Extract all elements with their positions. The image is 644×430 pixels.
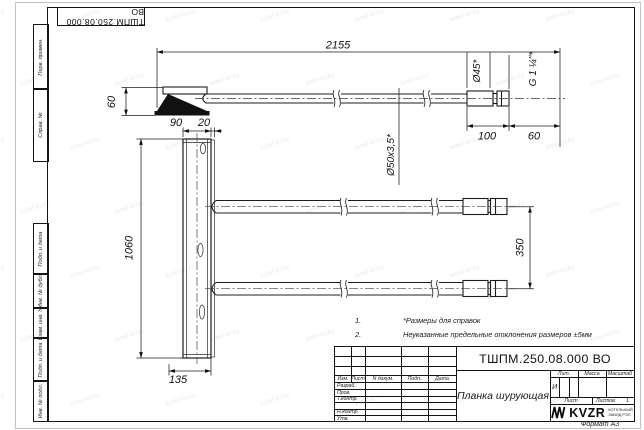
- watermark-text: kotel-kv.kz: [0, 392, 6, 408]
- title-block-doc-number: ТШПМ.250.08.000 ВО: [456, 348, 634, 369]
- col-n-dokum: N докум.: [365, 376, 401, 382]
- watermark-text: kotel-kv.kz: [0, 8, 6, 24]
- listov-label: Листов: [596, 398, 615, 404]
- format-note: Формат А3: [565, 421, 635, 428]
- list-label: Лист: [550, 398, 592, 404]
- col-izm: Изм.: [335, 376, 351, 382]
- part-name: Планка шурующая: [456, 371, 550, 421]
- margin-cell-inv-podl: Инв. № подл.: [33, 380, 49, 422]
- note-1-number: 1.: [355, 316, 361, 325]
- lit-value: И: [550, 380, 559, 394]
- top-rotated-stamp: ТШПМ.250.08.000 ВО: [57, 7, 145, 26]
- stamp-doc-number: ТШПМ.250.08.000 ВО: [58, 7, 144, 27]
- margin-cell-podp-data-upper: Подп. и дата: [33, 223, 49, 275]
- row-prov: Пров.: [337, 390, 351, 396]
- row-utv: Утв.: [337, 416, 349, 422]
- note-2-text: Неуказанные предельные отклонения размер…: [403, 330, 592, 339]
- margin-cell-sprav-no: Справ. №: [33, 88, 49, 162]
- row-n-kontr: Н.контр.: [337, 409, 359, 415]
- manufacturer-logo: KVZR КОТЕЛЬНЫЙ ЗАВОД РЭП: [551, 405, 633, 421]
- kvzr-coil-icon: [551, 406, 566, 419]
- row-razrab: Разраб.: [337, 383, 356, 389]
- col-podp: Подп.: [401, 376, 428, 382]
- row-t-kontr: Т.контр.: [337, 396, 358, 402]
- drawing-sheet: kotel-kv.kzkotel-kv.kzkotel-kv.kzkotel-k…: [0, 0, 644, 430]
- margin-cell-inv-dubl: Инв. № дубл.: [33, 273, 49, 309]
- col-data: Дата: [428, 376, 456, 382]
- note-1-text: *Размеры для справок: [403, 316, 480, 325]
- watermark-text: kotel-kv.kz: [0, 136, 6, 152]
- note-2-number: 2.: [355, 330, 361, 339]
- col-list: Лист: [351, 376, 365, 382]
- masshtab-header: Масштаб: [606, 371, 634, 377]
- logo-text: KVZR: [569, 406, 605, 420]
- listov-value: 1: [626, 398, 629, 404]
- margin-cell-perv-primen: Перв. примен.: [33, 24, 49, 90]
- margin-cell-vzam-inv: Взам. инв. №: [33, 307, 49, 339]
- lit-header: Лит.: [550, 371, 578, 377]
- company-line2: ЗАВОД РЭП: [608, 413, 632, 418]
- massa-header: Масса: [578, 371, 606, 377]
- watermark-text: kotel-kv.kz: [0, 264, 6, 280]
- margin-cell-podp-data-lower: Подп. и дата: [33, 337, 49, 382]
- title-block: Изм. Лист N докум. Подп. Дата Разраб. Пр…: [334, 346, 635, 422]
